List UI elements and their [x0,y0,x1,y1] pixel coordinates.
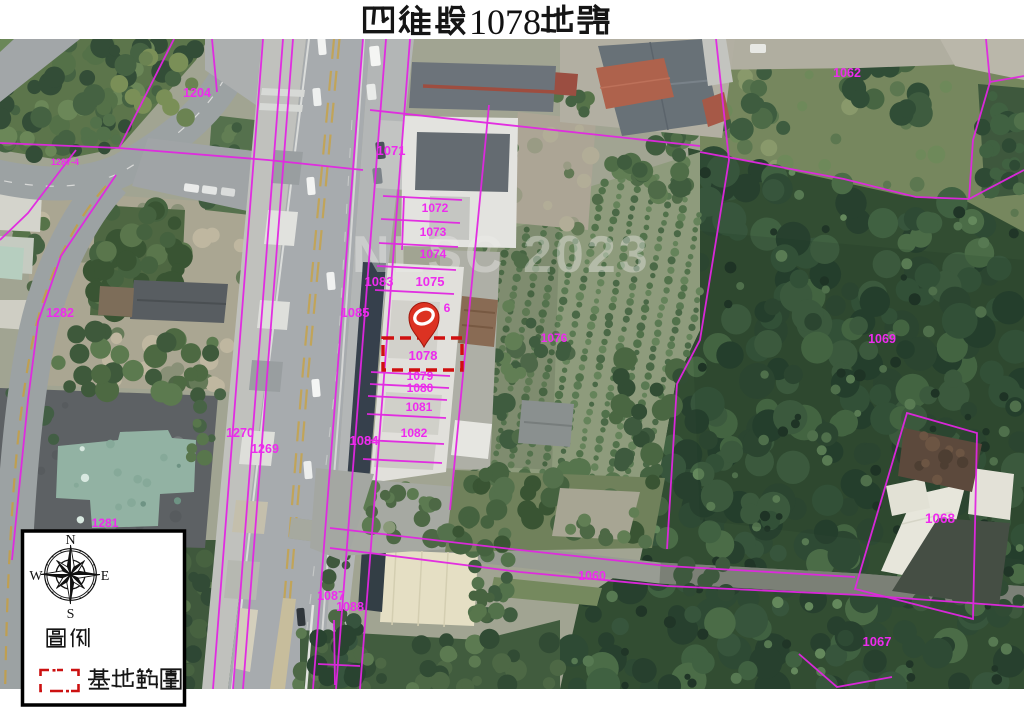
svg-text:1078: 1078 [409,348,438,363]
svg-text:1060: 1060 [578,569,606,583]
svg-text:1287-4: 1287-4 [51,157,79,167]
svg-text:NLSC 2023: NLSC 2023 [352,226,651,284]
svg-text:1088: 1088 [336,600,364,614]
svg-text:1085: 1085 [341,305,370,320]
svg-text:N: N [65,533,75,548]
svg-text:1078: 1078 [469,2,541,42]
svg-text:6: 6 [444,301,451,315]
svg-text:1075: 1075 [416,274,445,289]
svg-text:1269: 1269 [251,442,279,456]
svg-text:S: S [67,607,75,622]
svg-text:1074: 1074 [420,247,447,261]
svg-text:1281: 1281 [92,516,119,530]
svg-text:1082: 1082 [401,426,428,440]
svg-text:E: E [101,569,110,584]
svg-text:1282: 1282 [46,306,74,320]
svg-text:1270: 1270 [226,426,254,440]
svg-text:1069: 1069 [868,332,896,346]
svg-text:1071: 1071 [377,143,406,158]
svg-text:1081: 1081 [406,400,433,414]
svg-text:1076: 1076 [541,331,568,345]
svg-text:1080: 1080 [407,381,434,395]
svg-text:1072: 1072 [422,201,449,215]
svg-text:1062: 1062 [833,66,861,80]
svg-text:1083: 1083 [365,274,394,289]
svg-text:1068: 1068 [925,511,956,526]
svg-text:W: W [29,569,43,584]
svg-text:1204: 1204 [183,86,211,100]
svg-text:1073: 1073 [420,225,447,239]
svg-text:1084: 1084 [350,433,380,448]
svg-text:1067: 1067 [863,634,892,649]
